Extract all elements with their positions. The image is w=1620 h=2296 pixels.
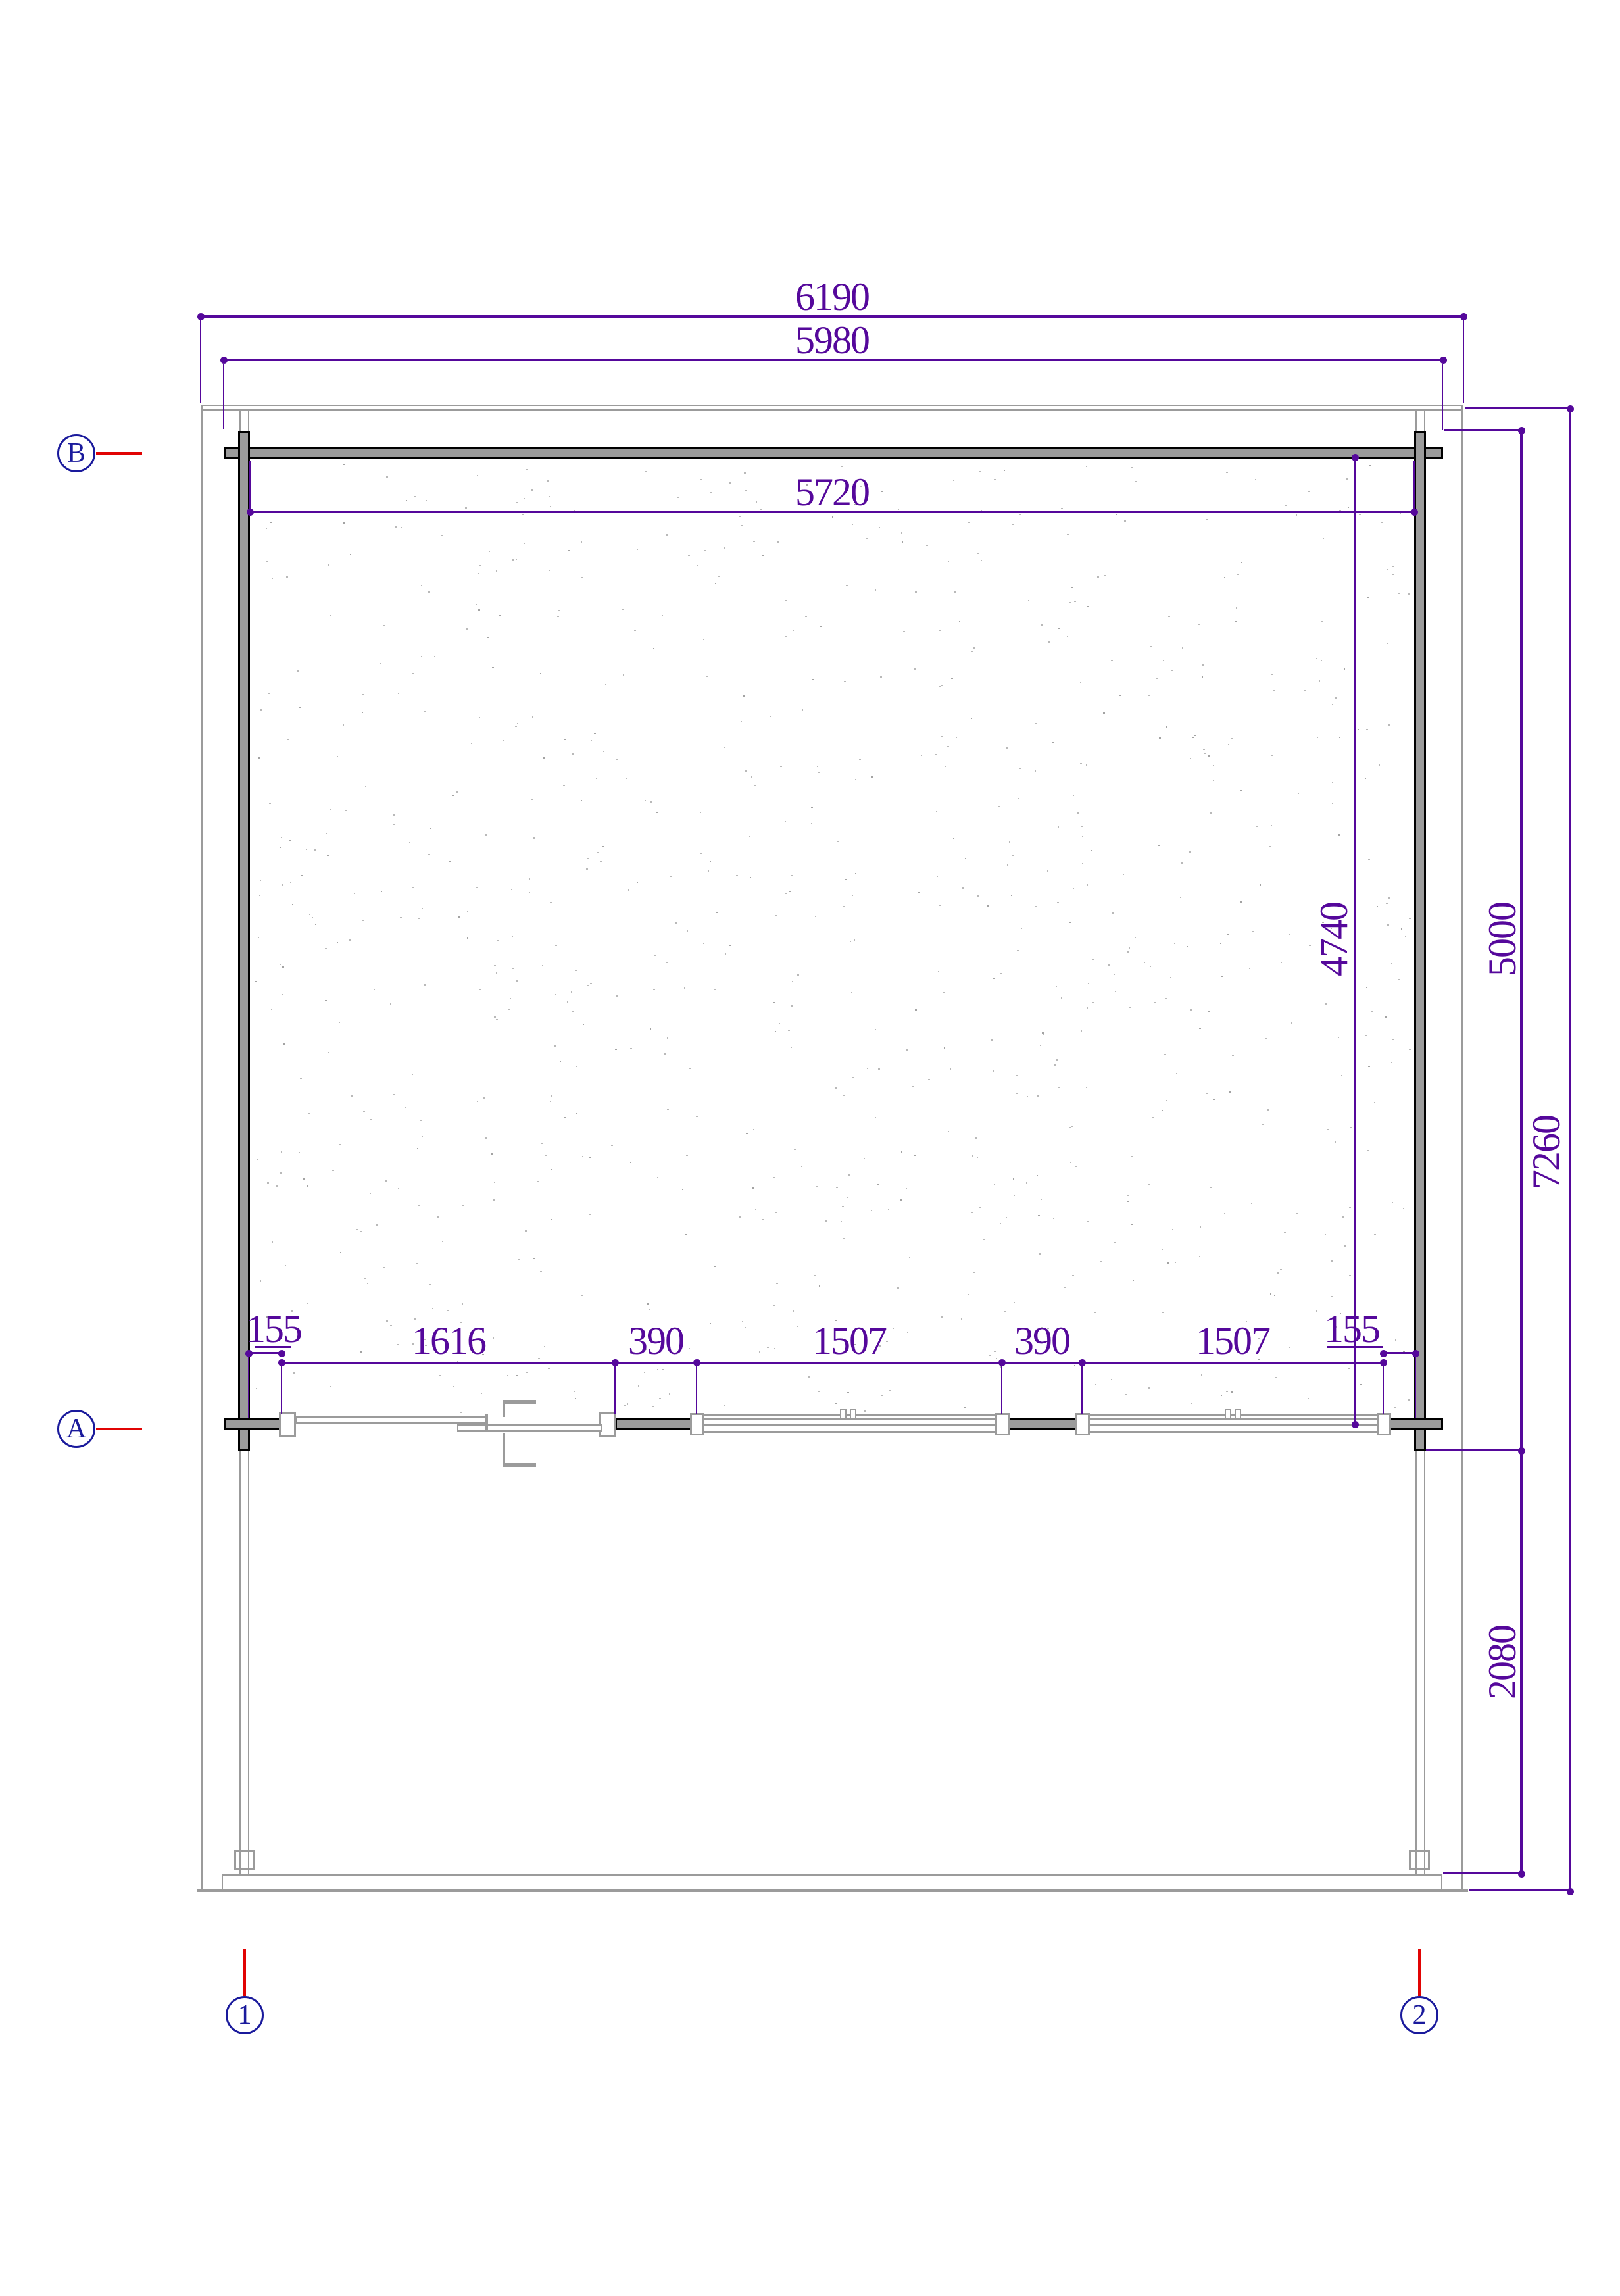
- dim-text-offset-right: 155: [1324, 1309, 1379, 1349]
- grid-marker-1-label: 1: [238, 2001, 252, 2029]
- dimension-dot: [220, 357, 228, 364]
- grid-marker-1: 1: [226, 1996, 264, 2034]
- floor-plan-canvas: 6190 5980 5720 4740 5000 2080 7260 155: [0, 0, 1620, 2296]
- post-left-line-a: [239, 1451, 241, 1875]
- dimension-dot: [612, 1359, 619, 1366]
- dim-text-overall-width: 6190: [795, 277, 869, 316]
- wall-joint-top-left: [240, 449, 248, 457]
- window-right-glazing-b: [1089, 1424, 1378, 1426]
- dim-text-cabin-depth: 5000: [1483, 903, 1522, 976]
- window-right-mullion-b: [1235, 1409, 1241, 1420]
- window-left-mullion-b: [850, 1409, 856, 1420]
- dimension-dot: [278, 1359, 285, 1366]
- dimension-dot: [197, 313, 205, 320]
- dimension-dot: [278, 1350, 285, 1357]
- door-panel-upper: [296, 1416, 488, 1424]
- dimension-dot: [693, 1359, 700, 1366]
- door-hook-lower-arm: [503, 1463, 536, 1467]
- window-left-mullion-a: [840, 1409, 847, 1420]
- dim-text-window-left: 1507: [812, 1321, 886, 1360]
- window-left-glazing-b: [703, 1424, 996, 1426]
- dim-ext-5720-left: [249, 461, 251, 511]
- grid-marker-A-label: A: [66, 1415, 86, 1443]
- post-right-line-a: [1415, 1451, 1417, 1875]
- dimension-dot: [1460, 313, 1467, 320]
- post-right-line-b: [1424, 1451, 1425, 1875]
- dim-ext-front: [1001, 1366, 1002, 1414]
- wall-stub-top-left-a: [239, 411, 241, 431]
- dim-text-door-opening: 1616: [412, 1321, 485, 1360]
- dimension-dot: [1079, 1359, 1086, 1366]
- dim-ext-5720-right: [1413, 461, 1415, 511]
- dim-ext-front: [1415, 1357, 1416, 1418]
- window-right-glazing-a: [1089, 1418, 1378, 1420]
- grid-marker-B-label: B: [67, 439, 86, 467]
- grid-leader-B: [96, 452, 142, 455]
- grid-leader-2: [1418, 1949, 1421, 1996]
- dim-conn-7260-top: [1465, 407, 1570, 409]
- dim-ext-front: [281, 1366, 282, 1414]
- dim-text-overall-depth: 7260: [1527, 1116, 1566, 1189]
- dim-line-7260: [1569, 409, 1571, 1891]
- dim-ext-6190-left: [200, 320, 201, 403]
- wall-stub-top-left-b: [248, 411, 249, 431]
- dim-ext-front: [614, 1366, 616, 1414]
- roof-edge-top-outer: [201, 405, 1463, 406]
- window-right-jamb-b: [1377, 1413, 1391, 1435]
- dimension-dot: [1567, 405, 1574, 412]
- deck-edge-step-left: [222, 1874, 223, 1891]
- roof-edge-right: [1461, 405, 1463, 1892]
- dimension-dot: [1380, 1350, 1387, 1357]
- grid-marker-2-label: 2: [1413, 2001, 1427, 2029]
- window-left-jamb-a: [690, 1413, 704, 1435]
- dim-conn-2080-bottom: [1443, 1872, 1521, 1874]
- wall-joint-bottom-right: [1416, 1420, 1424, 1428]
- wall-stub-top-right-a: [1415, 411, 1417, 431]
- door-hook-lower-stem: [503, 1433, 505, 1467]
- dim-ext-5980-left: [223, 364, 224, 429]
- dim-conn-5000-top: [1444, 429, 1522, 431]
- post-left-line-b: [248, 1451, 249, 1875]
- dimension-dot: [1352, 1421, 1359, 1428]
- wall-back: [224, 447, 1443, 459]
- dim-text-pier-right: 390: [1014, 1321, 1069, 1360]
- dimension-dot: [1518, 1870, 1525, 1878]
- dimension-dot: [1440, 357, 1447, 364]
- dim-ext-front: [696, 1366, 697, 1414]
- dim-ext-6190-right: [1463, 320, 1464, 403]
- door-interlock-bar: [485, 1414, 488, 1432]
- dim-text-offset-left: 155: [246, 1309, 301, 1349]
- door-hook-upper-arm: [503, 1400, 536, 1404]
- dimension-dot: [1518, 427, 1525, 434]
- dimension-dot: [1567, 1888, 1574, 1895]
- wall-stub-top-right-b: [1424, 411, 1425, 431]
- wall-front-pier-left: [615, 1418, 697, 1430]
- dimension-dot: [998, 1359, 1006, 1366]
- grid-marker-B: B: [57, 434, 95, 472]
- door-panel-lower: [457, 1424, 602, 1432]
- dim-text-terrace-depth: 2080: [1483, 1626, 1522, 1699]
- window-right-jamb-a: [1075, 1413, 1090, 1435]
- dim-text-interior-width: 5720: [795, 472, 869, 512]
- deck-edge-step-right: [1441, 1874, 1442, 1891]
- door-jamb-left: [279, 1412, 296, 1437]
- window-right-frame-top: [1089, 1414, 1378, 1416]
- dim-conn-2080-top: [1426, 1449, 1521, 1451]
- wall-joint-top-right: [1416, 449, 1424, 457]
- dim-ext-5980-right: [1442, 364, 1443, 430]
- wall-left: [238, 431, 250, 1451]
- window-right-sill: [1089, 1431, 1378, 1433]
- grid-marker-A: A: [57, 1410, 95, 1448]
- window-left-sill: [703, 1431, 996, 1433]
- window-right-mullion-a: [1225, 1409, 1231, 1420]
- dim-text-wall-outer-width: 5980: [795, 320, 869, 360]
- grid-marker-2: 2: [1400, 1996, 1438, 2034]
- post-footing-right: [1409, 1850, 1430, 1870]
- wall-front-left-segment: [224, 1418, 283, 1430]
- grid-leader-A: [96, 1428, 142, 1430]
- dim-text-interior-depth: 4740: [1314, 903, 1354, 976]
- wall-joint-bottom-left: [240, 1420, 248, 1428]
- dimension-dot: [1352, 454, 1359, 461]
- dim-ext-front: [248, 1357, 249, 1418]
- dim-ext-front: [1383, 1366, 1384, 1414]
- window-left-jamb-b: [995, 1413, 1010, 1435]
- dimension-dot: [1380, 1359, 1387, 1366]
- dim-line-155-right: [1383, 1352, 1415, 1354]
- wall-front-right-segment: [1383, 1418, 1443, 1430]
- dim-conn-7260-bottom: [1469, 1889, 1570, 1891]
- dim-text-pier-left: 390: [628, 1321, 683, 1360]
- roof-edge-top-inner: [201, 409, 1463, 411]
- roof-edge-left: [201, 405, 203, 1892]
- deck-front-edge-upper: [222, 1874, 1442, 1876]
- grid-leader-1: [243, 1949, 246, 1996]
- dim-ext-front: [1081, 1366, 1083, 1414]
- deck-front-edge-lower: [197, 1889, 1468, 1892]
- dim-text-window-right: 1507: [1196, 1321, 1269, 1360]
- post-footing-left: [234, 1850, 255, 1870]
- dim-line-155-left: [249, 1352, 282, 1354]
- wall-front-pier-right: [1002, 1418, 1082, 1430]
- wall-right: [1414, 431, 1426, 1451]
